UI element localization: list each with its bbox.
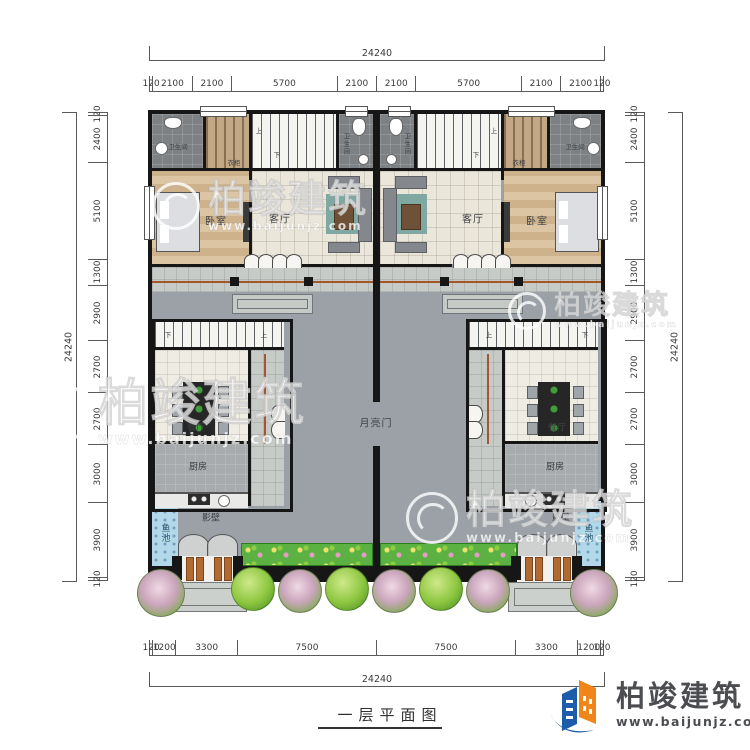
dimension-total-right: 24240	[668, 112, 683, 582]
passage-beam-left	[264, 354, 266, 444]
double-door-leaf	[271, 421, 285, 439]
dimension-value: 5100	[630, 199, 640, 222]
dimension-chain-top: 12021002100570021002100570021002100120	[149, 76, 604, 92]
tree	[278, 569, 322, 613]
dimension-value: 5700	[273, 79, 296, 89]
window	[508, 106, 555, 117]
dimension-value: 3300	[195, 643, 218, 653]
room-label-moon-gate: 月亮门	[360, 415, 393, 430]
dimension-value: 1200	[153, 643, 176, 653]
chair	[218, 404, 229, 417]
wall	[502, 350, 505, 506]
chair	[527, 386, 538, 399]
gate-door-arc	[546, 534, 577, 557]
dimension-value: 5700	[457, 79, 480, 89]
porch-column	[514, 277, 523, 286]
stair-down-label: 下	[165, 329, 172, 339]
brand-name: 柏竣建筑	[616, 682, 750, 711]
dimension-segment: 2400	[88, 115, 108, 161]
room-label-kitchen: 厨房	[546, 460, 564, 473]
dimension-value: 3000	[93, 462, 103, 485]
dimension-value: 1300	[93, 261, 103, 284]
dimension-value: 120	[630, 570, 640, 587]
chair	[218, 422, 229, 435]
floor-plan: 卫生间 卫生间 卫生间 卫生间 衣柜 衣柜 卧室 卧室 客厅 客厅 餐厅 餐厅 …	[148, 110, 605, 582]
wall	[155, 441, 248, 444]
porch-steps-left	[232, 294, 313, 314]
stairs-left-unit	[252, 114, 336, 168]
dimension-chain-right: 12024005100130029002700270030003900120	[625, 112, 645, 581]
folding-door-leaf	[286, 254, 302, 268]
dimension-value: 3900	[630, 528, 640, 551]
dimension-total-bottom: 24240	[149, 672, 605, 687]
room-label-fish-pond: 鱼池	[159, 523, 172, 543]
stair-down-label: 下	[473, 149, 480, 159]
porch-column	[230, 277, 239, 286]
wall	[509, 264, 601, 267]
wall	[505, 441, 598, 444]
stair-up-label: 上	[256, 125, 263, 135]
sofa-right	[383, 188, 397, 242]
drawing-title-underline	[318, 727, 442, 729]
dimension-segment: 2900	[88, 285, 108, 341]
gate-door-arc	[517, 534, 548, 557]
sofa-left	[358, 188, 372, 242]
chair	[172, 422, 183, 435]
dimension-segment: 3000	[88, 444, 108, 502]
dimension-segment: 3300	[175, 640, 237, 656]
dimension-segment: 3000	[625, 444, 645, 502]
wall-center	[373, 114, 380, 402]
dimension-value: 120	[593, 643, 610, 653]
dimension-value: 2100	[385, 79, 408, 89]
toilet	[352, 118, 366, 136]
dimension-segment: 7500	[376, 640, 515, 656]
room-label-wardrobe: 衣柜	[513, 157, 526, 167]
dimension-segment: 3900	[625, 502, 645, 577]
watermark-logo-icon	[28, 382, 90, 444]
gate-post	[186, 557, 194, 581]
chair	[218, 386, 229, 399]
window	[597, 186, 608, 240]
dimension-value: 120	[593, 79, 610, 89]
room-label-screen-wall: 影壁	[552, 511, 570, 524]
double-door-leaf	[469, 421, 483, 439]
folding-door-leaf	[495, 254, 511, 268]
sofa-left	[328, 176, 360, 189]
room-label-bathroom: 卫生间	[168, 141, 188, 151]
dimension-segment: 120	[625, 577, 645, 580]
washer	[155, 142, 168, 155]
gate-pier	[511, 556, 521, 580]
dimension-segment: 2100	[376, 76, 415, 92]
dimension-value: 2700	[630, 355, 640, 378]
wall	[414, 114, 417, 168]
sink-left	[218, 495, 230, 507]
gate-door-arc	[207, 534, 238, 557]
chair	[573, 386, 584, 399]
wall	[469, 347, 598, 350]
dimension-segment: 120	[88, 577, 108, 580]
chair	[172, 386, 183, 399]
dimension-segment: 5100	[88, 162, 108, 259]
wall-center-lower	[373, 446, 380, 566]
dimension-chain-bottom: 120120033007500750033001200120	[149, 640, 604, 656]
sofa-right	[395, 176, 427, 189]
dimension-value: 2100	[569, 79, 592, 89]
dimension-segment: 3900	[88, 502, 108, 577]
dimension-segment: 2100	[337, 76, 376, 92]
room-label-wardrobe: 衣柜	[228, 157, 241, 167]
toilet	[389, 118, 403, 136]
stove-right	[543, 494, 565, 505]
dimension-segment: 2900	[625, 285, 645, 341]
dimension-segment: 2700	[88, 392, 108, 444]
room-label-fish-pond: 鱼池	[582, 523, 595, 543]
wall	[249, 171, 252, 180]
dimension-value: 2100	[345, 79, 368, 89]
tree	[231, 567, 275, 611]
dimension-segment: 2700	[88, 340, 108, 392]
chair	[172, 404, 183, 417]
dimension-segment: 5100	[625, 162, 645, 259]
stair-up-label: 上	[491, 125, 498, 135]
wall	[248, 350, 251, 506]
stair-up-label: 上	[486, 329, 493, 339]
tv-cabinet-right	[504, 202, 510, 242]
window	[200, 106, 247, 117]
wall	[501, 171, 504, 180]
dimension-value: 5100	[93, 199, 103, 222]
room-label-kitchen: 厨房	[189, 460, 207, 473]
dimension-segment: 7500	[237, 640, 376, 656]
gate-post	[563, 557, 571, 581]
wall	[336, 114, 339, 168]
porch-column	[440, 277, 449, 286]
bed-right	[555, 192, 599, 252]
window	[144, 186, 155, 240]
washer	[587, 142, 600, 155]
dimension-value: 3000	[630, 462, 640, 485]
tree	[372, 569, 416, 613]
dimension-segment: 1300	[625, 259, 645, 285]
dimension-segment: 1200	[152, 640, 175, 656]
dimension-segment: 2700	[625, 340, 645, 392]
dimension-value: 2100	[200, 79, 223, 89]
tree	[570, 569, 618, 617]
dimension-value: 2100	[530, 79, 553, 89]
tree	[325, 567, 369, 611]
room-label-dining-room: 餐厅	[548, 421, 566, 434]
passage-beam-right	[487, 354, 489, 444]
dimension-value: 2700	[93, 407, 103, 430]
porch-column	[304, 277, 313, 286]
flower-bed-left	[241, 543, 373, 566]
room-label-dining-room: 餐厅	[187, 421, 205, 434]
brand-url: www.baijunjz.com	[616, 714, 750, 729]
floor-plan-page: 24240 1202100210057002100210057002100210…	[0, 0, 750, 750]
dimension-segment: 2400	[625, 115, 645, 161]
dimension-segment: 1300	[88, 259, 108, 285]
wall	[547, 114, 550, 168]
sofa-right	[395, 242, 427, 253]
room-label-bathroom: 卫生间	[341, 133, 351, 156]
dimension-segment: 120	[600, 640, 603, 656]
dimension-value: 2100	[161, 79, 184, 89]
room-label-living-room: 客厅	[269, 211, 291, 226]
coffee-table-right	[401, 204, 421, 230]
wall	[155, 347, 284, 350]
room-label-bathroom: 卫生间	[565, 141, 585, 151]
room-label-living-room: 客厅	[462, 211, 484, 226]
dimension-value: 2400	[93, 127, 103, 150]
room-label-screen-wall: 影壁	[202, 511, 220, 524]
dimension-chain-left: 12024005100130029002700270030003900120	[88, 112, 108, 581]
bed-left	[156, 192, 200, 252]
wall	[203, 114, 206, 168]
chair	[573, 404, 584, 417]
stove-left	[188, 494, 210, 505]
dimension-segment: 2700	[625, 392, 645, 444]
stair-down-label: 下	[582, 329, 589, 339]
gate-post	[196, 557, 204, 581]
basin	[386, 154, 397, 165]
room-label-bedroom: 卧室	[205, 213, 227, 228]
sink-right	[525, 495, 537, 507]
window	[345, 106, 368, 117]
room-label-bedroom: 卧室	[526, 213, 548, 228]
dimension-segment: 3300	[515, 640, 577, 656]
gate-post	[553, 557, 561, 581]
dimension-total-left: 24240	[62, 112, 77, 582]
gate-door-arc	[178, 534, 209, 557]
dimension-total-top: 24240	[149, 46, 605, 61]
gate-post	[214, 557, 222, 581]
gate-post	[525, 557, 533, 581]
dimension-segment: 2100	[152, 76, 191, 92]
dimension-segment: 2100	[521, 76, 560, 92]
wall	[152, 264, 244, 267]
room-label-bathroom: 卫生间	[402, 133, 412, 156]
dimension-value: 2700	[93, 355, 103, 378]
dimension-value: 2900	[630, 301, 640, 324]
tree	[466, 569, 510, 613]
chair	[527, 404, 538, 417]
dimension-value: 2700	[630, 407, 640, 430]
tree	[419, 567, 463, 611]
brand-logo-icon	[548, 672, 610, 738]
wall	[249, 114, 252, 168]
gate-post	[535, 557, 543, 581]
dimension-value: 2900	[93, 301, 103, 324]
dimension-value: 1300	[630, 261, 640, 284]
stairs-right-unit	[417, 114, 501, 168]
stair-up-label: 上	[261, 329, 268, 339]
basin	[358, 154, 369, 165]
coffee-table-left	[334, 204, 354, 230]
dimension-segment: 120	[600, 76, 603, 92]
dimension-value: 3300	[535, 643, 558, 653]
gate-post	[224, 557, 232, 581]
toilet	[164, 117, 182, 129]
dimension-segment: 5700	[415, 76, 520, 92]
tree	[137, 569, 185, 617]
porch-steps-right	[442, 294, 523, 314]
dimension-value: 7500	[435, 643, 458, 653]
dimension-value: 7500	[296, 643, 319, 653]
dimension-segment: 2100	[192, 76, 231, 92]
window	[388, 106, 411, 117]
wall	[501, 114, 504, 168]
stair-down-label: 下	[274, 149, 281, 159]
toilet	[573, 117, 591, 129]
chair	[527, 422, 538, 435]
wardrobe-right	[504, 114, 547, 168]
brand-logo: 柏竣建筑 www.baijunjz.com	[548, 672, 750, 738]
flower-bed-right	[380, 543, 517, 566]
dimension-value: 2400	[630, 127, 640, 150]
dimension-segment: 5700	[231, 76, 336, 92]
dimension-value: 120	[93, 570, 103, 587]
sofa-left	[328, 242, 360, 253]
chair	[573, 422, 584, 435]
dimension-value: 3900	[93, 528, 103, 551]
drawing-title: 一层平面图	[310, 704, 470, 725]
